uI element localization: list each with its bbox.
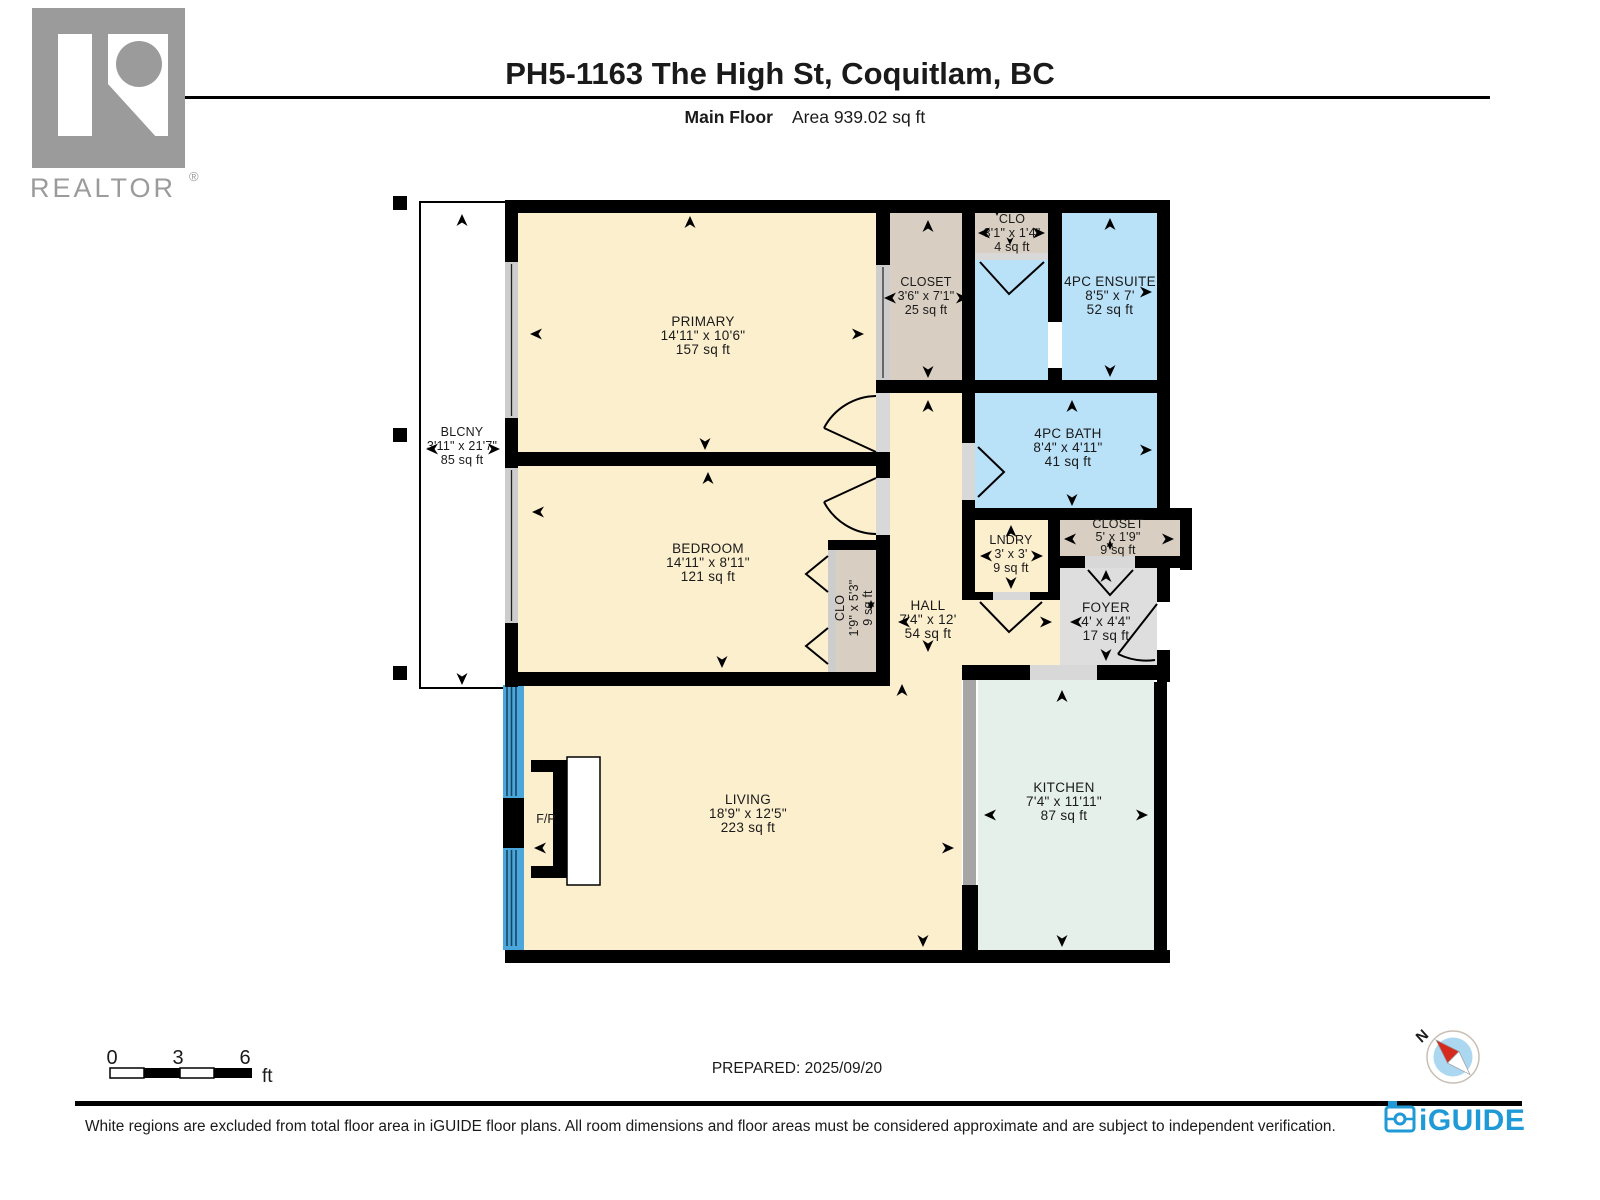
svg-text:4' x 4'4": 4' x 4'4" [1081,614,1130,629]
svg-text:3'6" x 7'1": 3'6" x 7'1" [898,289,955,303]
svg-text:85 sq ft: 85 sq ft [441,453,484,467]
footer-divider [75,1101,1522,1106]
realtor-registered-mark: ® [189,169,199,184]
svg-text:14'11" x 8'11": 14'11" x 8'11" [666,555,750,570]
svg-text:5' x 1'9": 5' x 1'9" [1095,530,1140,544]
balcony-post [393,428,407,442]
scale-bar: 0 3 6 ft [106,1047,273,1087]
scale-tick-0: 0 [106,1047,117,1069]
svg-text:17 sq ft: 17 sq ft [1083,628,1130,643]
svg-text:4PC BATH: 4PC BATH [1034,426,1101,441]
svg-text:1'9" x 5'3": 1'9" x 5'3" [847,580,861,637]
svg-text:3'1" x 1'4": 3'1" x 1'4" [984,226,1041,240]
title-divider [75,96,1490,99]
svg-text:CLOSET: CLOSET [900,275,951,289]
svg-text:9 sq ft: 9 sq ft [993,561,1029,575]
footer: White regions are excluded from total fl… [75,1101,1525,1137]
svg-text:9 sq ft: 9 sq ft [1100,543,1136,557]
svg-text:CLO: CLO [833,595,847,621]
ensuite-lobby-fill [975,253,1048,380]
svg-text:8'4" x 4'11": 8'4" x 4'11" [1033,440,1102,455]
fireplace-label: F/P [536,812,555,826]
svg-text:14'11" x 10'6": 14'11" x 10'6" [661,328,746,343]
svg-text:CLOSET: CLOSET [1092,517,1143,531]
svg-text:KITCHEN: KITCHEN [1033,780,1094,795]
room-hall-fill [890,393,962,686]
svg-text:3' x 3': 3' x 3' [994,547,1027,561]
svg-text:157 sq ft: 157 sq ft [676,342,731,357]
svg-text:54 sq ft: 54 sq ft [905,626,952,641]
scale-tick-3: 3 [172,1047,183,1069]
window-living-upper [503,685,524,798]
prepared-date: PREPARED: 2025/09/20 [712,1060,883,1077]
room-lndry-label: LNDRY 3' x 3' 9 sq ft [989,533,1033,575]
svg-text:41 sq ft: 41 sq ft [1045,454,1092,469]
compass-icon: N [1413,1026,1479,1083]
kitchen-open-wall [963,680,976,885]
svg-text:LNDRY: LNDRY [989,533,1033,547]
floorplan-page: PH5-1163 The High St, Coquitlam, BC Main… [0,0,1600,1200]
header: PH5-1163 The High St, Coquitlam, BC Main… [75,56,1490,127]
room-closet-top-label: CLOSET 3'6" x 7'1" 25 sq ft [898,275,955,317]
svg-text:4 sq ft: 4 sq ft [994,240,1030,254]
hall-corridor-fill [962,600,1060,672]
svg-text:4PC ENSUITE: 4PC ENSUITE [1064,274,1156,289]
window-living-lower [503,848,524,950]
floor-area-label: Area 939.02 sq ft [792,107,925,127]
svg-text:121 sq ft: 121 sq ft [681,569,736,584]
svg-text:8'5" x 7': 8'5" x 7' [1085,288,1134,303]
footer-disclaimer: White regions are excluded from total fl… [85,1118,1336,1135]
svg-text:BEDROOM: BEDROOM [672,541,744,556]
svg-text:PRIMARY: PRIMARY [671,314,734,329]
room-foyer-label: FOYER 4' x 4'4" 17 sq ft [1081,600,1130,643]
floor-label: Main Floor [685,107,774,127]
svg-text:HALL: HALL [911,598,946,613]
scale-tick-6: 6 [239,1047,250,1069]
scale-unit: ft [262,1066,273,1087]
svg-text:223 sq ft: 223 sq ft [721,820,776,835]
svg-text:3'11" x 21'7": 3'11" x 21'7" [427,439,497,453]
realtor-logo-icon: REALTOR ® [30,8,199,203]
svg-text:87 sq ft: 87 sq ft [1041,808,1088,823]
svg-text:25 sq ft: 25 sq ft [905,303,948,317]
iguide-logo: iGUIDE [1386,1101,1525,1137]
floor-plan: PRIMARY 14'11" x 10'6" 157 sq ft BEDROOM… [393,196,1192,963]
balcony-post [393,666,407,680]
svg-text:CLO: CLO [999,212,1025,226]
iguide-wordmark: iGUIDE [1419,1104,1525,1137]
page-title: PH5-1163 The High St, Coquitlam, BC [505,56,1054,91]
svg-text:52 sq ft: 52 sq ft [1087,302,1134,317]
svg-text:7'4" x 11'11": 7'4" x 11'11" [1026,794,1102,809]
svg-text:LIVING: LIVING [725,792,771,807]
compass-north-label: N [1413,1026,1432,1046]
floorplan-canvas: PH5-1163 The High St, Coquitlam, BC Main… [0,0,1600,1200]
svg-text:BLCNY: BLCNY [441,425,484,439]
fireplace-hearth [567,757,600,885]
svg-text:FOYER: FOYER [1082,600,1130,615]
svg-text:9 sq ft: 9 sq ft [861,590,875,626]
realtor-wordmark: REALTOR [30,173,176,203]
balcony-post [393,196,407,210]
svg-text:18'9" x 12'5": 18'9" x 12'5" [709,806,787,821]
